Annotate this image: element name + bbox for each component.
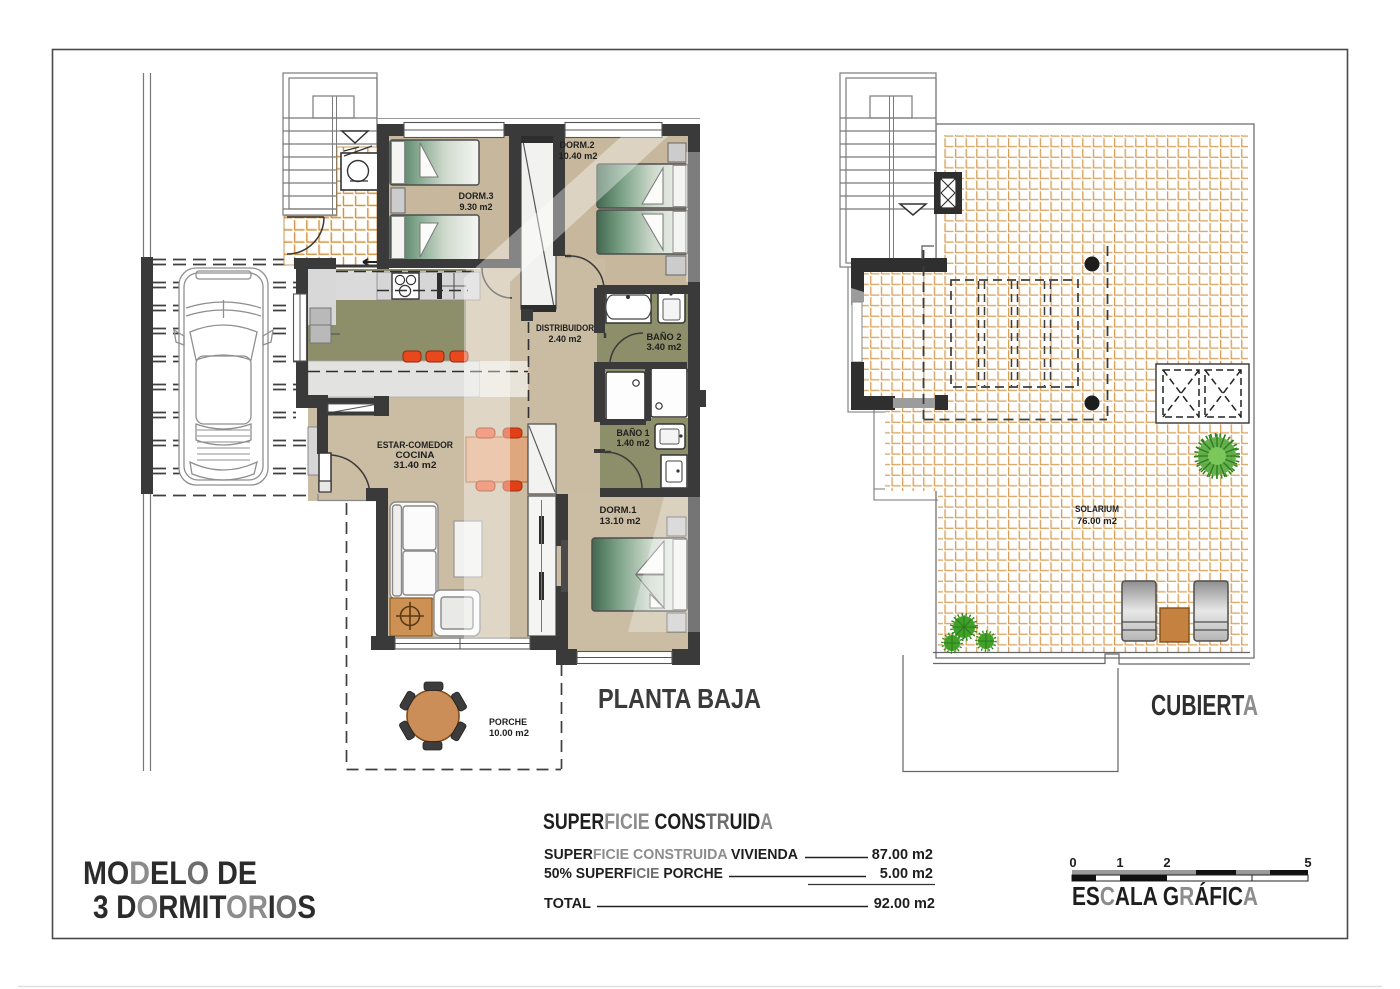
svg-text:MODELO DE: MODELO DE [83,855,257,891]
svg-text:DISTRIBUIDOR: DISTRIBUIDOR [536,323,594,334]
svg-text:PORCHE: PORCHE [489,717,527,728]
svg-text:SUPERFICIE CONSTRUIDA: SUPERFICIE CONSTRUIDA [543,809,773,834]
svg-text:2.40 m2: 2.40 m2 [549,334,582,345]
svg-text:1: 1 [1116,855,1123,870]
svg-text:87.00 m2: 87.00 m2 [872,847,933,863]
svg-text:76.00 m2: 76.00 m2 [1077,516,1117,527]
svg-text:5.00 m2: 5.00 m2 [880,866,933,882]
svg-text:SUPERFICIE CONSTRUIDA VIVIENDA: SUPERFICIE CONSTRUIDA VIVIENDA [544,847,799,863]
svg-text:TOTAL: TOTAL [544,896,591,912]
svg-text:50% SUPERFICIE PORCHE: 50% SUPERFICIE PORCHE [544,866,723,882]
svg-text:DORM.3: DORM.3 [459,191,494,202]
svg-text:10.00 m2: 10.00 m2 [489,728,529,739]
svg-text:DORM.1: DORM.1 [600,505,638,516]
svg-text:0: 0 [1069,855,1076,870]
svg-text:SOLARIUM: SOLARIUM [1075,504,1119,515]
svg-text:PLANTA BAJA: PLANTA BAJA [598,683,761,714]
svg-text:13.10 m2: 13.10 m2 [600,516,641,527]
svg-text:10.40 m2: 10.40 m2 [559,151,598,162]
svg-text:3 DORMITORIOS: 3 DORMITORIOS [93,889,316,925]
svg-text:9.30 m2: 9.30 m2 [460,202,493,213]
svg-text:1.40 m2: 1.40 m2 [617,438,650,449]
svg-text:2: 2 [1163,855,1170,870]
svg-text:CUBIERTA: CUBIERTA [1151,690,1258,722]
svg-text:5: 5 [1304,855,1311,870]
svg-text:92.00 m2: 92.00 m2 [874,896,935,912]
svg-text:DORM.2: DORM.2 [560,140,595,151]
svg-text:31.40 m2: 31.40 m2 [394,460,437,471]
svg-text:3.40 m2: 3.40 m2 [647,342,682,353]
svg-text:ESCALA GRÁFICA: ESCALA GRÁFICA [1072,881,1258,911]
